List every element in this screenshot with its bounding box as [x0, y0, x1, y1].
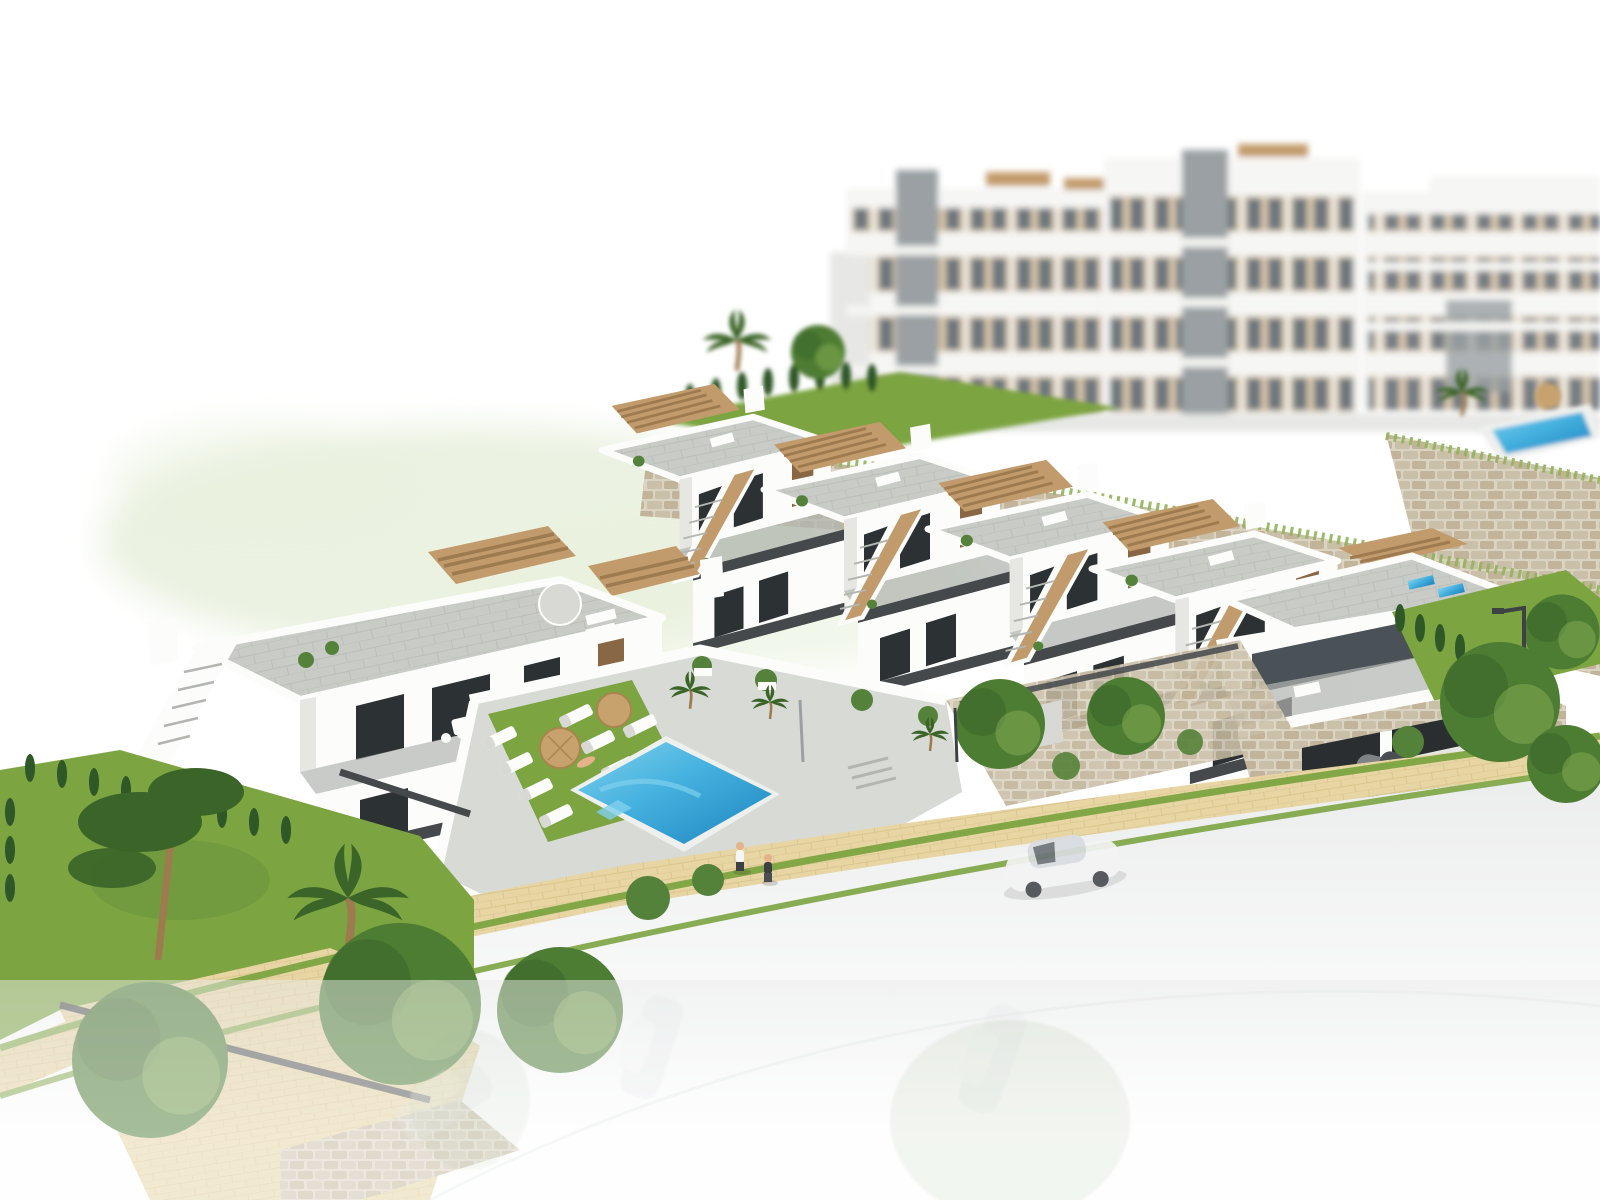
bottom-fade — [0, 980, 1600, 1200]
scene-svg — [0, 0, 1600, 1200]
apartment-block-right — [1362, 176, 1600, 410]
render-canvas — [0, 0, 1600, 1200]
roof-parasol — [539, 583, 581, 625]
straw-parasol-1 — [540, 728, 580, 768]
apartment-block-center — [1104, 144, 1360, 420]
straw-parasol-2 — [597, 693, 631, 727]
